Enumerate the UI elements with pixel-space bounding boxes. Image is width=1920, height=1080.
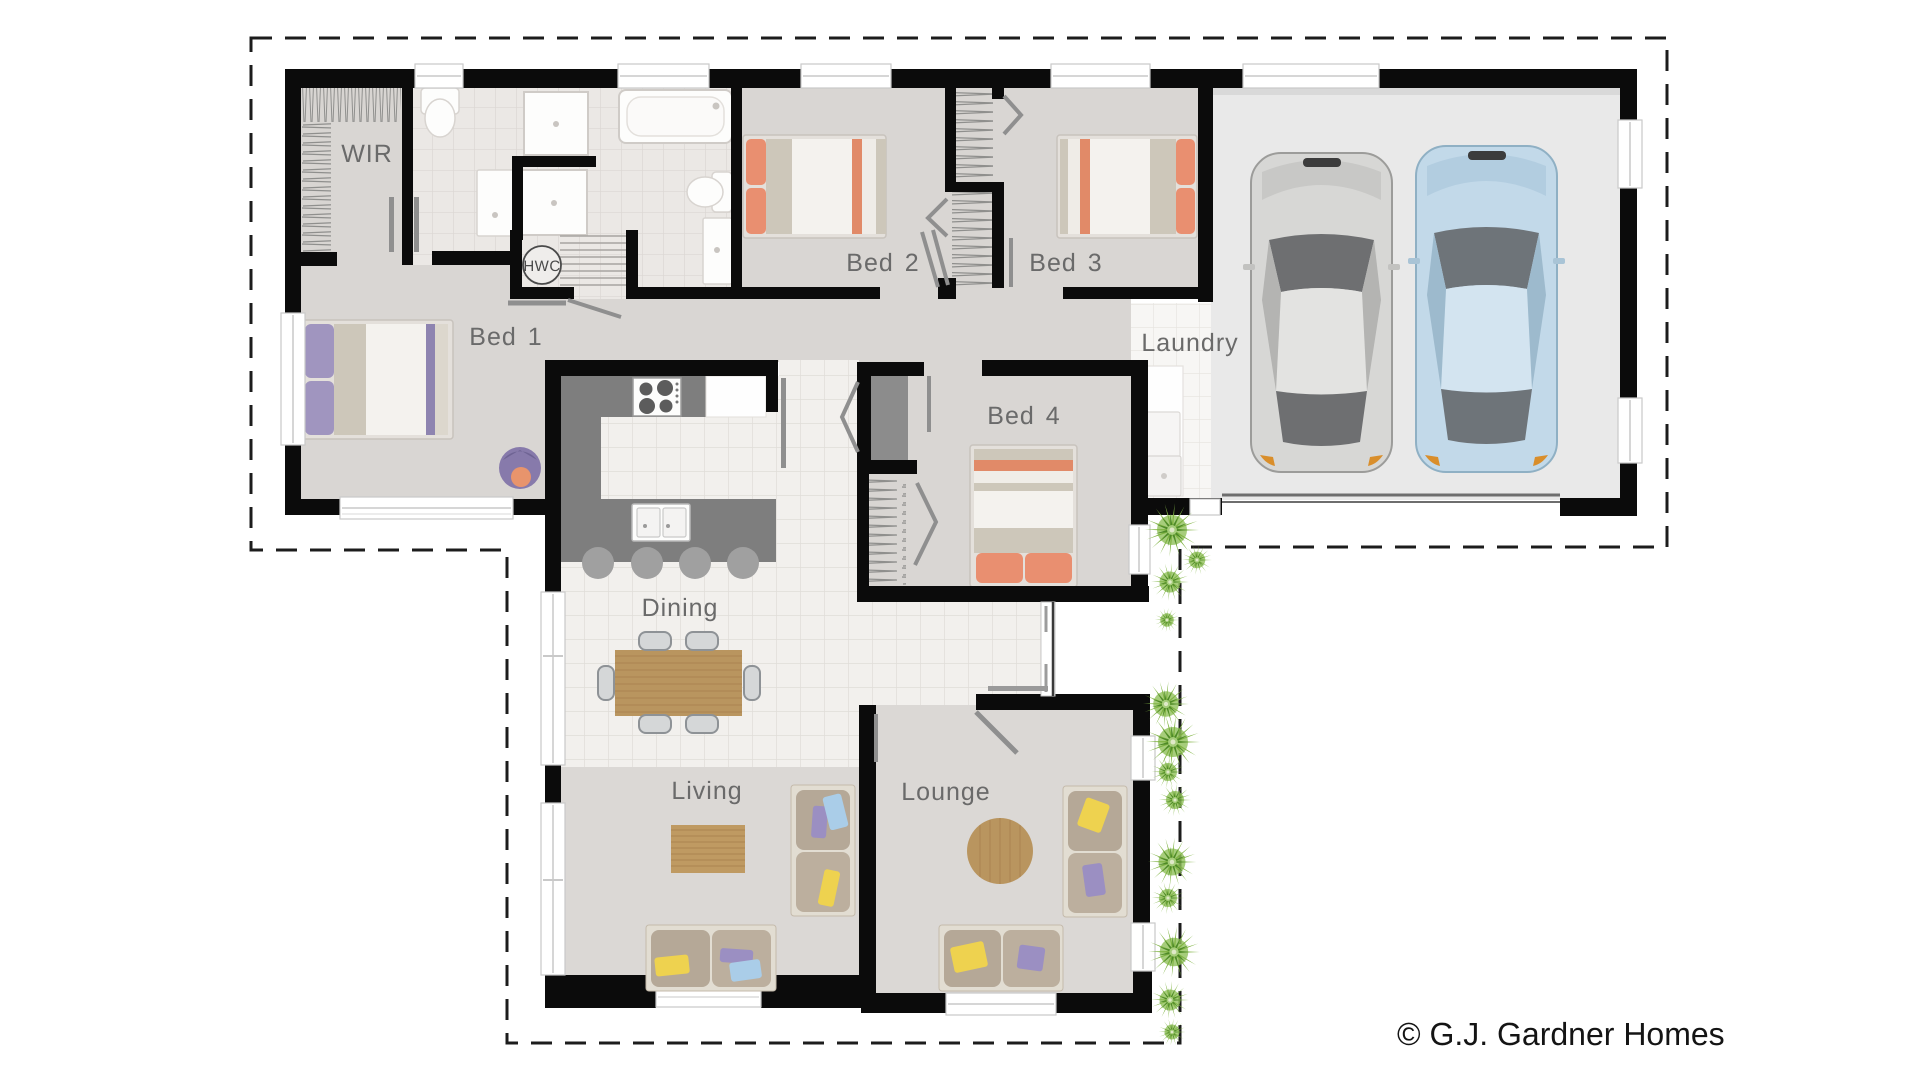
svg-text:Bed 2: Bed 2 [846, 249, 919, 277]
svg-text:WIR: WIR [341, 140, 393, 168]
svg-text:Bed 3: Bed 3 [1029, 249, 1102, 277]
svg-text:Laundry: Laundry [1141, 329, 1238, 357]
svg-text:Lounge: Lounge [901, 778, 990, 806]
svg-text:Dining: Dining [642, 594, 719, 622]
svg-text:HWC: HWC [523, 258, 560, 275]
svg-text:Bed 1: Bed 1 [469, 323, 542, 351]
svg-text:Living: Living [671, 777, 742, 805]
svg-text:Bed 4: Bed 4 [987, 402, 1060, 430]
svg-text:© G.J. Gardner Homes: © G.J. Gardner Homes [1397, 1016, 1725, 1052]
